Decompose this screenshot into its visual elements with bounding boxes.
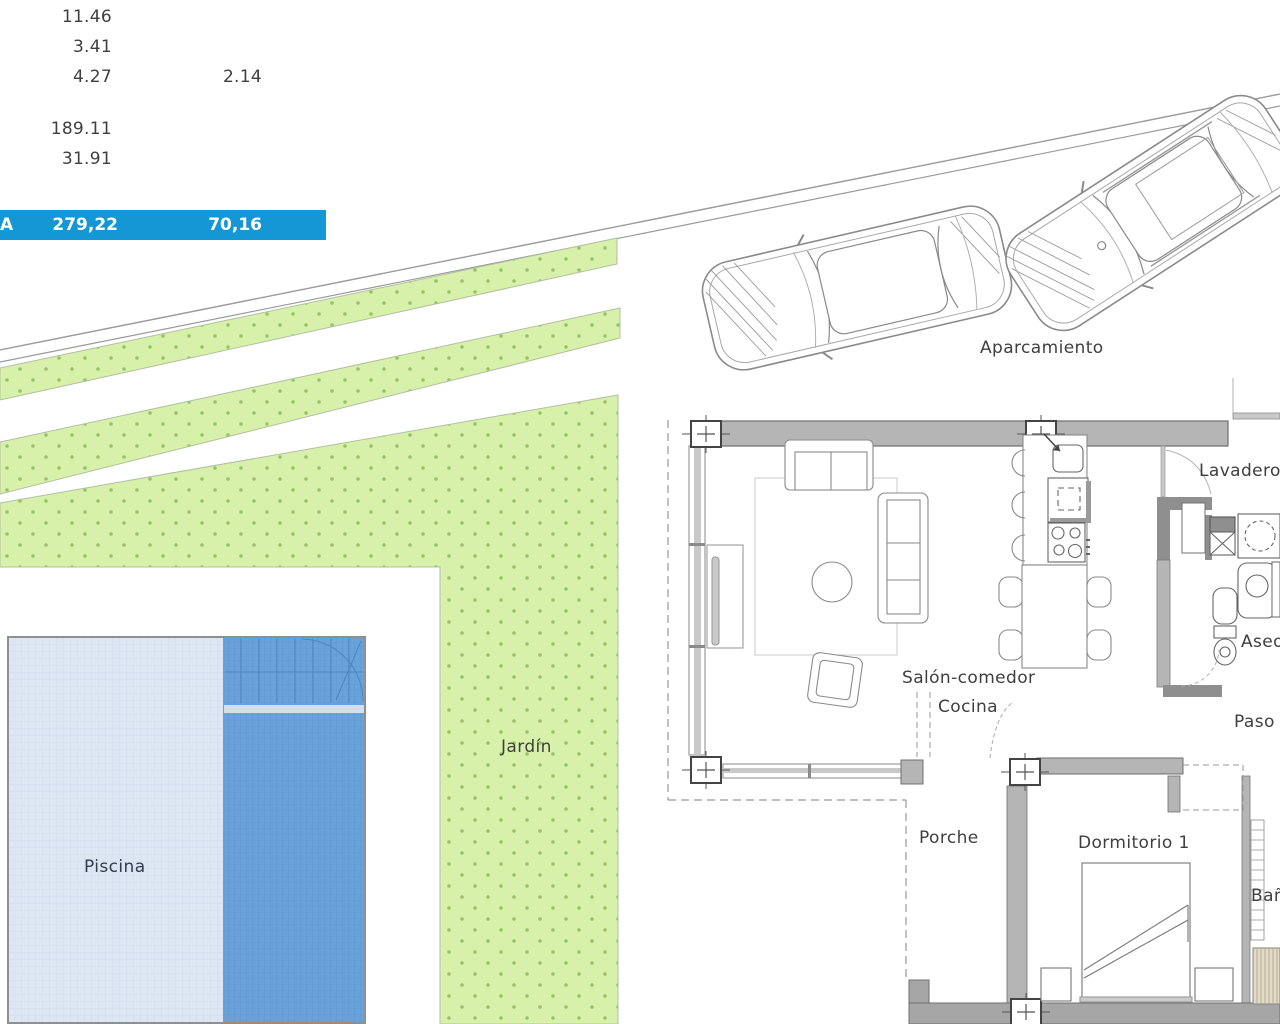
oven-icon xyxy=(1048,478,1091,523)
bidet xyxy=(1213,588,1237,624)
measurement-value: 31.91 xyxy=(0,149,112,169)
label-aparcamiento: Aparcamiento xyxy=(980,338,1104,358)
label-dormitorio-1: Dormitorio 1 xyxy=(1078,833,1190,853)
bed xyxy=(1080,863,1192,1002)
sofa xyxy=(785,440,873,490)
label-paso: Paso xyxy=(1234,712,1275,732)
site-plan-drawing xyxy=(0,0,1280,1024)
bath-closet-hatch xyxy=(1251,820,1264,940)
car-1-icon xyxy=(694,191,1019,384)
kitchen xyxy=(999,434,1111,668)
toilet-icon xyxy=(1214,626,1236,665)
cooktop-icon xyxy=(1048,523,1090,562)
side-table xyxy=(812,562,852,602)
chaise-sofa xyxy=(878,493,928,623)
tv-bench xyxy=(707,545,743,648)
measurement-value: 189.11 xyxy=(0,119,112,139)
cabinet-x xyxy=(1210,532,1235,555)
floor-plan-page: 11.46 3.41 4.27 2.14 189.11 31.91 A 279,… xyxy=(0,0,1280,1024)
measurement-value: 11.46 xyxy=(0,7,112,27)
label-jardin: Jardín xyxy=(501,737,552,757)
dining-table-set xyxy=(999,565,1111,668)
total-useful-area: 70,16 xyxy=(150,210,262,240)
living-room-furniture xyxy=(707,440,928,708)
label-porche: Porche xyxy=(919,828,979,848)
porch-bedroom-wall xyxy=(1007,786,1027,1003)
label-piscina: Piscina xyxy=(84,857,146,877)
label-bano: Baño xyxy=(1251,886,1280,906)
nightstand-right xyxy=(1195,968,1233,1001)
appliance-top xyxy=(1210,517,1235,532)
measurement-value: 4.27 xyxy=(0,67,112,87)
label-lavadero: Lavadero xyxy=(1199,461,1280,481)
label-aseo: Aseo xyxy=(1241,632,1280,652)
car-2-icon xyxy=(990,77,1280,350)
top-wall xyxy=(695,421,1228,446)
pool xyxy=(8,637,365,1024)
armchair xyxy=(807,652,863,708)
washer-icon xyxy=(1238,514,1280,558)
measurement-value: 3.41 xyxy=(0,37,112,57)
bottom-wall xyxy=(909,1003,1280,1024)
totals-bar: A 279,22 70,16 xyxy=(0,210,326,240)
label-salon-comedor: Salón-comedor xyxy=(902,668,1035,688)
label-cocina: Cocina xyxy=(938,697,998,717)
measurement-value: 2.14 xyxy=(200,67,262,87)
total-built-area: 279,22 xyxy=(0,210,118,240)
washbasin-icon xyxy=(1238,562,1280,618)
nightstand-left xyxy=(1041,968,1071,1001)
paso-wall xyxy=(1037,758,1183,774)
bath-steps xyxy=(1253,948,1280,1004)
